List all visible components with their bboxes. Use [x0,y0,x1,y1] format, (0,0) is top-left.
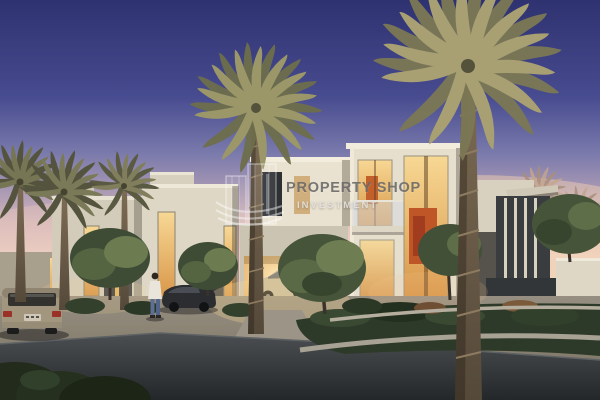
property-render-image: PROPERTY SHOP INVESTMENT [0,0,600,400]
bush [124,301,160,315]
scene-canvas [0,0,600,400]
suv-car [0,288,69,341]
dim-window [294,176,310,214]
garden-wall [556,260,600,302]
bush [342,298,382,314]
bush [65,298,105,314]
